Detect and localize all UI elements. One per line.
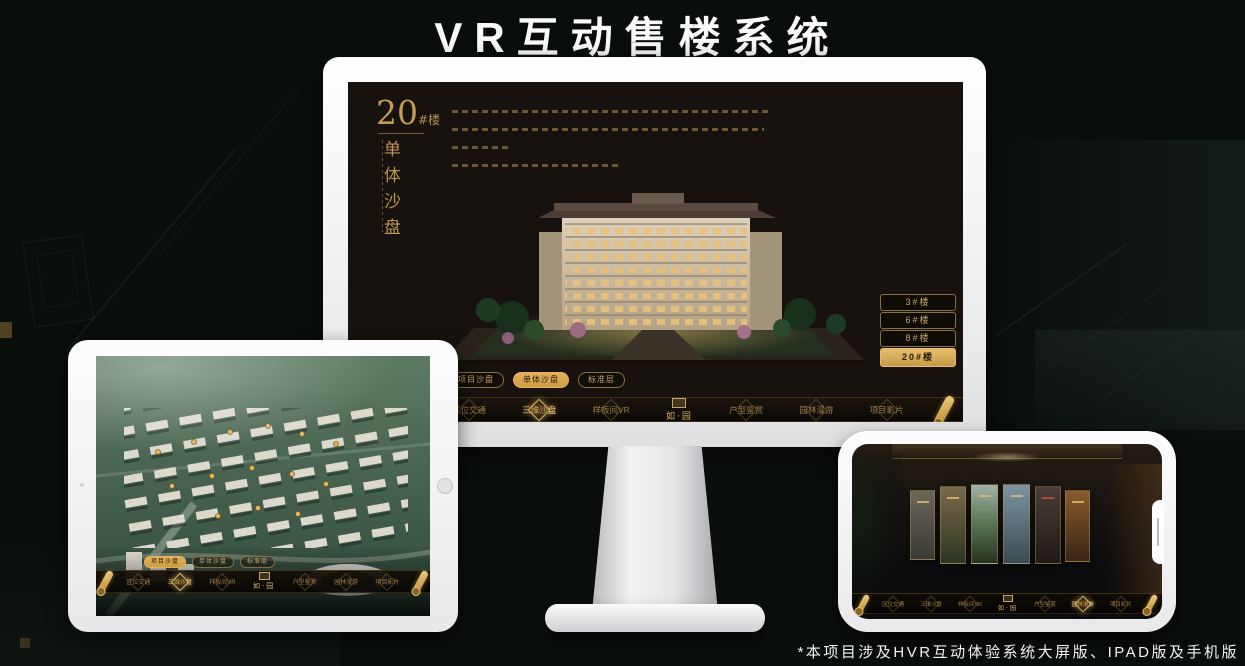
- description-line: [452, 110, 772, 113]
- bg-gold-fragment: [0, 322, 12, 338]
- phone-screen: 区位交通 三维沙盘 样板间VR 如·园 户型鉴赏 园林漫游 项目影片: [852, 444, 1162, 619]
- gold-rule: [378, 133, 424, 134]
- gallery-panel[interactable]: [1003, 484, 1030, 564]
- brand-logo: 如·园: [666, 398, 693, 422]
- ipad-camera: [80, 483, 84, 487]
- ipad-tab-standard-floor[interactable]: 标准层: [240, 556, 275, 568]
- nav-item-showroom-vr[interactable]: 样板间VR: [209, 577, 235, 586]
- gallery-panel[interactable]: [1035, 486, 1061, 564]
- brand-logo-icon: [672, 398, 686, 408]
- gallery-panel[interactable]: [940, 486, 966, 564]
- ipad-view-tabs: 项目沙盘 单体沙盘 标准层: [144, 556, 275, 568]
- building-number-unit: #楼: [418, 113, 440, 127]
- ipad-main-nav: 区位交通 三维沙盘 样板间VR 如·园 户型鉴赏 园林漫游 项目影片: [96, 570, 430, 593]
- scroll-menu-icon[interactable]: [1144, 593, 1159, 613]
- footnote: *本项目涉及HVR互动体验系统大屏版、IPAD版及手机版: [0, 641, 1239, 662]
- bg-map-frame: [36, 250, 79, 308]
- nav-item-3d-sandtable[interactable]: 三维沙盘: [168, 577, 192, 586]
- ceiling-light: [972, 452, 1042, 462]
- building-hero: 20#楼 单体沙盘: [376, 96, 446, 244]
- brand-logo: 如·园: [253, 572, 275, 591]
- brand-logo-text: 如·园: [666, 409, 693, 422]
- brand-logo-text: 如·园: [998, 603, 1018, 612]
- nav-item-garden-tour[interactable]: 园林漫游: [799, 404, 833, 416]
- scroll-menu-icon[interactable]: [97, 569, 114, 593]
- scroll-menu-icon[interactable]: [412, 569, 429, 593]
- panel-caption: [1011, 495, 1023, 497]
- ipad-tab-project-sandtable[interactable]: 项目沙盘: [144, 556, 186, 568]
- description-line: [452, 128, 764, 131]
- panel-caption: [979, 495, 991, 497]
- nav-item-location[interactable]: 区位交通: [126, 577, 150, 586]
- floor-button[interactable]: 8#楼: [880, 330, 956, 347]
- nav-item-floorplans[interactable]: 户型鉴赏: [729, 404, 763, 416]
- description-line: [452, 146, 508, 149]
- panel-caption: [947, 497, 959, 499]
- ipad-screen: 项目沙盘 单体沙盘 标准层 区位交通 三维沙盘 样板间VR 如·园 户型鉴赏 园…: [96, 356, 430, 616]
- ipad-home-button[interactable]: [437, 478, 453, 494]
- panel-caption: [1042, 497, 1054, 499]
- floor-button[interactable]: 3#楼: [880, 294, 956, 311]
- monitor-stand-neck: [592, 446, 718, 612]
- nav-item-showroom-vr[interactable]: 样板间VR: [958, 600, 982, 608]
- bg-photo-haze: [1035, 330, 1245, 440]
- floor-button[interactable]: 6#楼: [880, 312, 956, 329]
- phone-speaker-slit: [1157, 518, 1159, 546]
- bg-map-line: [67, 150, 236, 350]
- nav-item-project-film[interactable]: 项目影片: [870, 404, 904, 416]
- nav-item-location[interactable]: 区位交通: [882, 600, 904, 608]
- page-title: VR互动售楼系统: [0, 4, 1245, 65]
- bg-map-line: [159, 85, 301, 254]
- view-tabs: 项目沙盘 单体沙盘 标准层: [448, 372, 625, 388]
- poster-canvas: VR互动售楼系统 20#楼 单体沙盘: [0, 0, 1245, 666]
- sand-table-render[interactable]: [444, 160, 864, 365]
- floor-button-selected[interactable]: 20#楼: [880, 348, 956, 367]
- monitor-stand-base: [545, 604, 765, 632]
- gold-dashed-rule: [382, 140, 383, 232]
- brand-logo: 如·园: [998, 595, 1018, 612]
- panel-caption: [917, 501, 929, 503]
- phone-main-nav: 区位交通 三维沙盘 样板间VR 如·园 户型鉴赏 园林漫游 项目影片: [852, 593, 1162, 614]
- nav-item-3d-sandtable[interactable]: 三维沙盘: [920, 600, 942, 608]
- gallery-panel[interactable]: [1065, 490, 1090, 562]
- tab-standard-floor[interactable]: 标准层: [578, 372, 625, 388]
- panel-caption: [1072, 501, 1084, 503]
- nav-item-project-film[interactable]: 项目影片: [375, 577, 399, 586]
- nav-item-floorplans[interactable]: 户型鉴赏: [293, 577, 317, 586]
- nav-item-garden-tour[interactable]: 园林漫游: [334, 577, 358, 586]
- nav-item-showroom-vr[interactable]: 样板间VR: [593, 404, 630, 416]
- scroll-menu-icon[interactable]: [856, 593, 871, 613]
- ipad-tab-single-sandtable[interactable]: 单体沙盘: [192, 556, 234, 568]
- nav-item-garden-tour[interactable]: 园林漫游: [1072, 600, 1094, 608]
- brand-logo-text: 如·园: [253, 581, 275, 591]
- tab-single-sandtable[interactable]: 单体沙盘: [513, 372, 569, 388]
- gallery-panel[interactable]: [910, 490, 935, 560]
- brand-logo-icon: [259, 572, 270, 580]
- brand-logo-icon: [1003, 595, 1013, 602]
- nav-item-project-film[interactable]: 项目影片: [1110, 600, 1132, 608]
- nav-item-3d-sandtable[interactable]: 三维沙盘: [522, 404, 556, 416]
- tree-silhouette: [852, 454, 902, 604]
- scroll-menu-icon[interactable]: [933, 394, 955, 422]
- gallery-panel[interactable]: [971, 484, 998, 564]
- nav-item-floorplans[interactable]: 户型鉴赏: [1034, 600, 1056, 608]
- building-number: 20: [376, 93, 418, 132]
